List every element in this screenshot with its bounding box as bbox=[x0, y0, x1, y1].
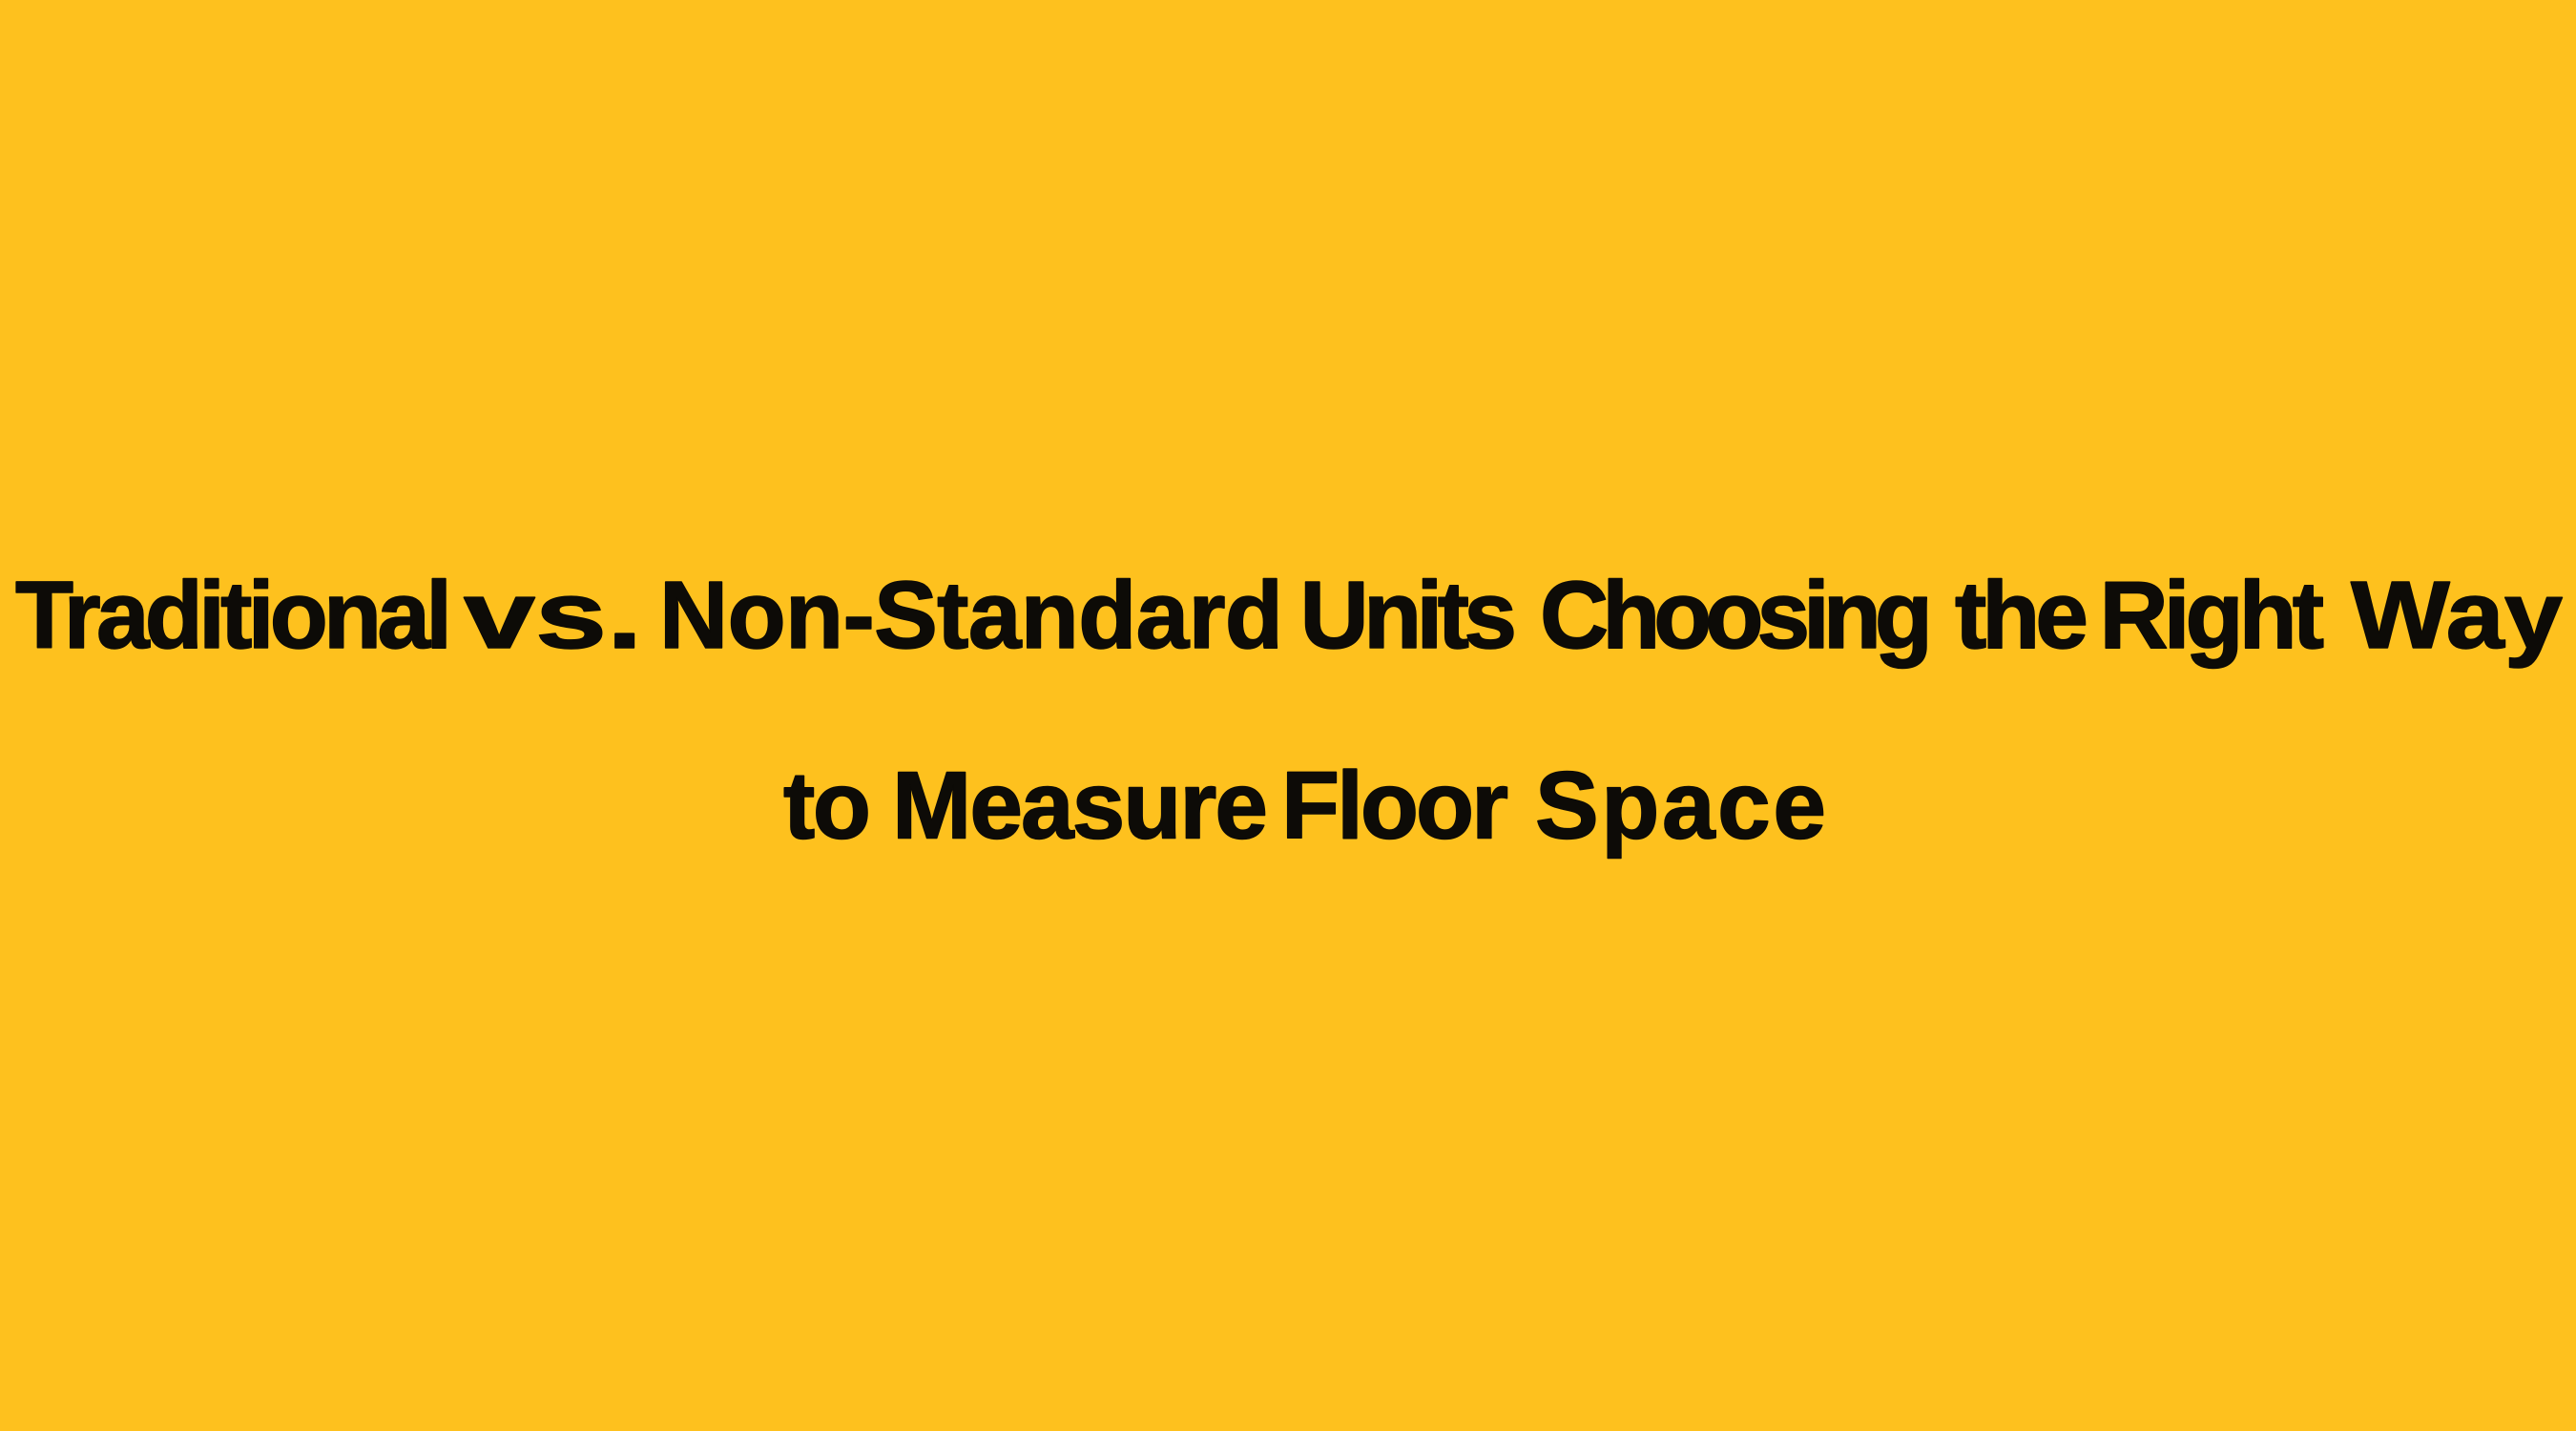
svg-text:Way: Way bbox=[2351, 563, 2563, 669]
svg-text:vs.: vs. bbox=[464, 563, 642, 669]
svg-text:TraditionalNon-StandardUnitsCh: TraditionalNon-StandardUnitsChoosingtheR… bbox=[15, 562, 2324, 669]
svg-text:toMeasureFloorSpace: toMeasureFloorSpace bbox=[783, 753, 1826, 860]
